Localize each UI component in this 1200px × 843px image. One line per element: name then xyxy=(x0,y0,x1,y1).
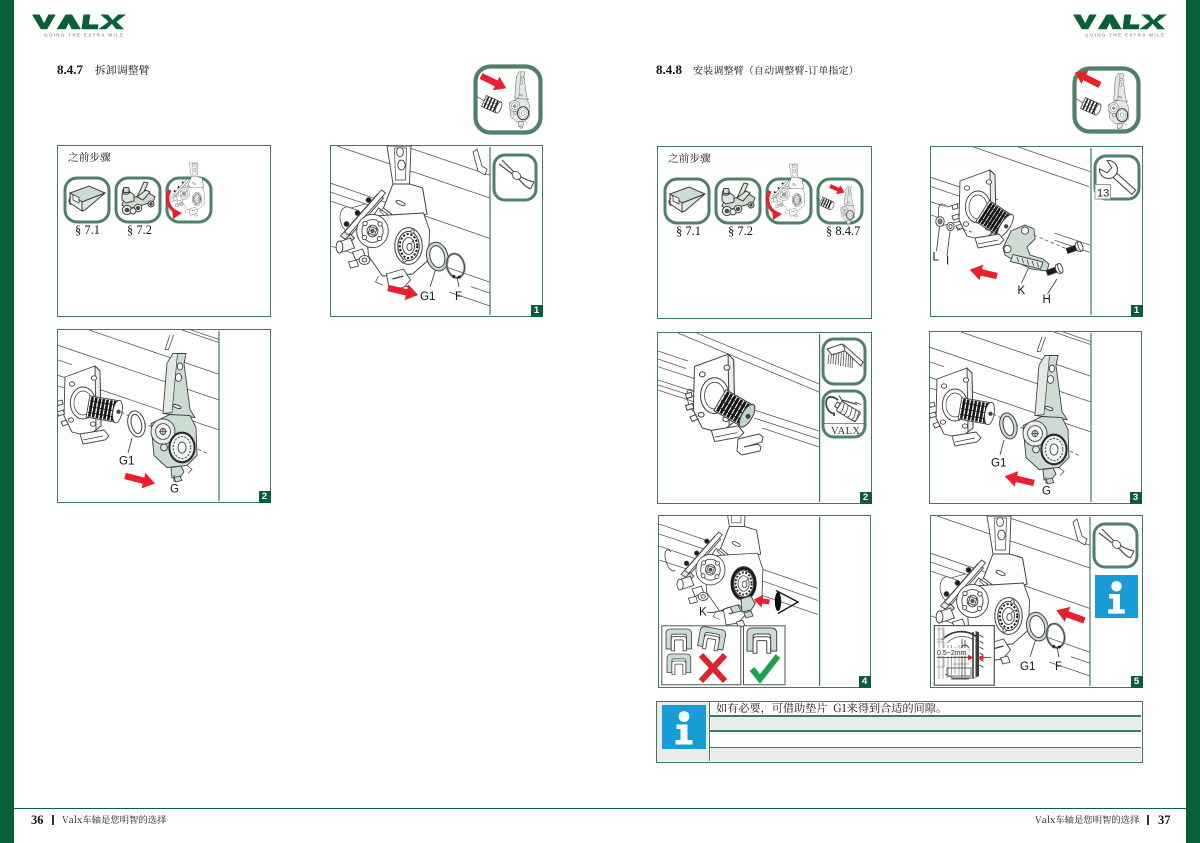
svg-text:K: K xyxy=(699,607,707,619)
svg-text:G1: G1 xyxy=(991,458,1006,470)
svg-text:G1: G1 xyxy=(420,291,435,303)
svg-text:F: F xyxy=(455,291,462,303)
svg-text:K: K xyxy=(1018,285,1026,297)
svg-text:I: I xyxy=(946,256,949,268)
svg-text:13: 13 xyxy=(1097,188,1109,200)
svg-text:G1: G1 xyxy=(119,456,134,468)
svg-text:H: H xyxy=(1043,294,1051,306)
svg-text:L: L xyxy=(933,252,940,264)
svg-text:F: F xyxy=(1055,661,1062,673)
svg-text:0.5~2mm: 0.5~2mm xyxy=(937,650,967,657)
svg-text:G1: G1 xyxy=(1020,661,1035,673)
svg-text:G: G xyxy=(170,484,179,496)
svg-text:VALX: VALX xyxy=(831,426,860,437)
svg-text:G: G xyxy=(1042,486,1051,498)
svg-text:GOING THE EXTRA MILE: GOING THE EXTRA MILE xyxy=(44,33,124,38)
svg-text:GOING THE EXTRA MILE: GOING THE EXTRA MILE xyxy=(1085,33,1165,38)
